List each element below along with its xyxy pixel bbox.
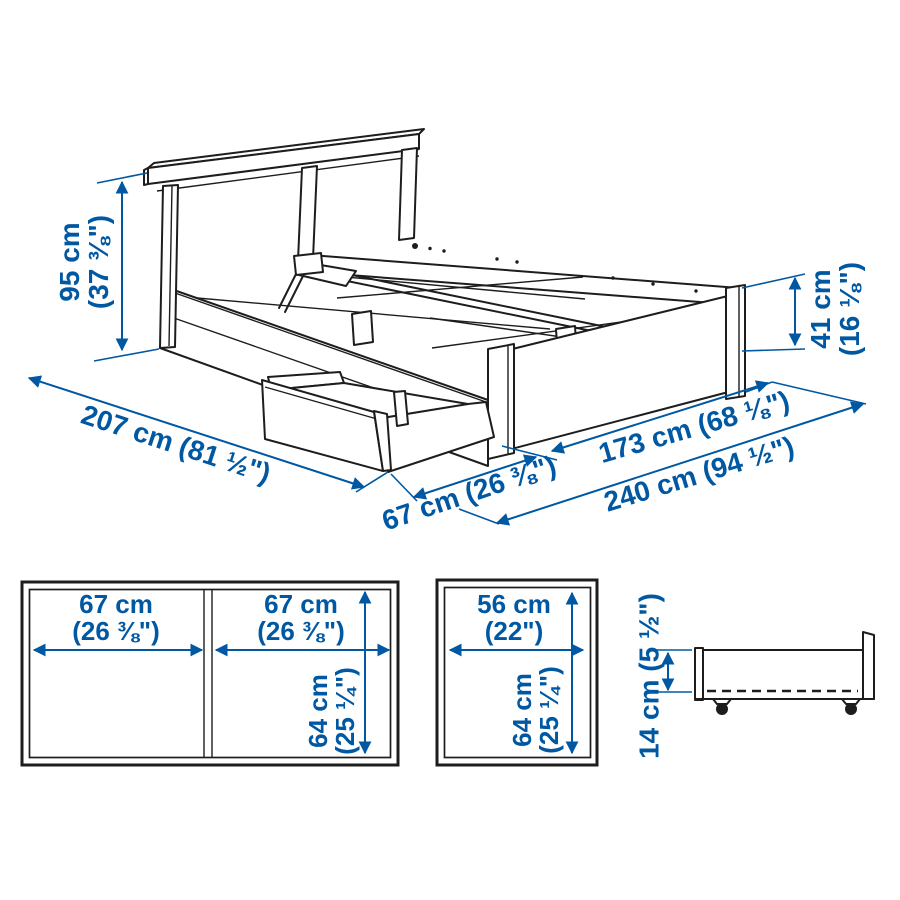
caster-wheel	[842, 699, 860, 715]
right-drawer-width-label: 67 cm (26 ⅜")	[257, 591, 344, 645]
dimension-diagram-page: 95 cm (37 ⅜") 41 cm (16 ⅛") 207 cm (81 ½…	[0, 0, 900, 900]
side-height-label: 41 cm (16 ⅛")	[806, 262, 864, 356]
left-drawer-width-label: 67 cm (26 ⅜")	[72, 591, 159, 645]
single-drawer-depth-label: 64 cm (25 ¼")	[509, 666, 563, 753]
drawer-pair-depth-label: 64 cm (25 ¼")	[305, 667, 359, 754]
bed-far-rail	[310, 243, 739, 305]
headboard-height-label: 95 cm (37 ⅜")	[55, 215, 113, 309]
drawer-side-view	[654, 632, 874, 715]
caster-wheel	[713, 699, 731, 715]
drawer-height-label: 14 cm (5 ½")	[634, 593, 663, 759]
single-drawer-width-label: 56 cm (22")	[477, 591, 551, 645]
bed-frame-illustration	[144, 129, 745, 472]
